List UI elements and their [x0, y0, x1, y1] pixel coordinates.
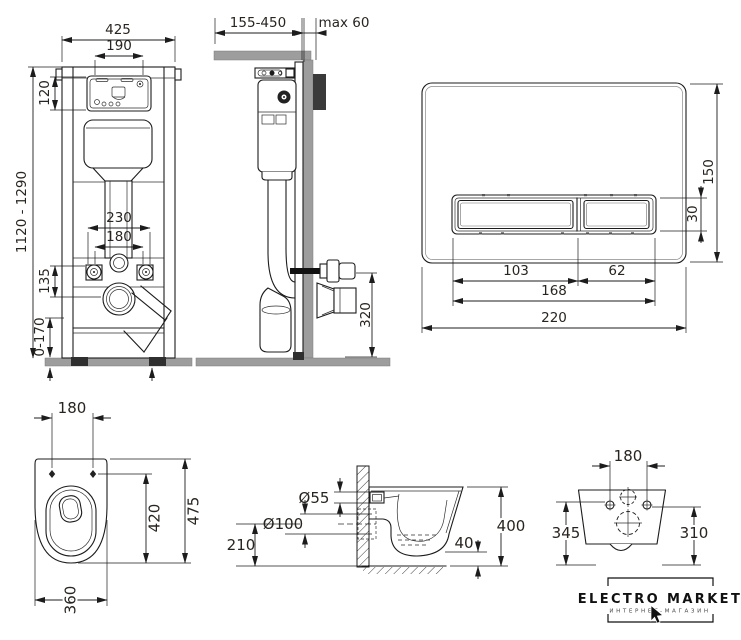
dim-seat-bolt-span: 180	[58, 399, 87, 417]
dim-frame-width: 425	[105, 22, 131, 38]
inlet-socket	[370, 492, 384, 503]
toilet-side-view: Ø55 Ø100 210 400 40	[227, 466, 526, 579]
dim-depth-adjust: 155-450	[230, 15, 286, 31]
technical-drawing: 425 190 120 1120 - 1290 230 180 135 0-17…	[0, 0, 741, 640]
dim-connect-height: 320	[358, 302, 374, 328]
dim-outlet-height: 210	[227, 536, 256, 554]
big-flush-button	[458, 201, 573, 229]
dim-outlet-drop: 135	[37, 268, 53, 294]
floor-strip	[45, 358, 192, 366]
toilet-top-view: 180 475 420 360	[34, 399, 203, 614]
frame-side-view: 155-450 max 60 320	[196, 15, 390, 366]
wall-bracket-pad	[313, 74, 326, 110]
waste-outlet-cone	[317, 283, 356, 318]
dim-fixing-span: 230	[106, 210, 132, 226]
dim-plate-height: 150	[701, 159, 717, 185]
dim-buttons-width: 168	[541, 283, 567, 299]
dim-pan-width: 360	[62, 586, 80, 615]
cistern-side	[258, 80, 296, 180]
flush-plate	[422, 83, 686, 263]
wall-strip	[303, 60, 313, 358]
dim-foot-adjust: 0-170	[32, 317, 48, 356]
trap-bump	[610, 544, 632, 551]
dim-access-height: 120	[37, 80, 53, 106]
dim-bolt-span: 180	[106, 229, 132, 245]
dim-access-width: 190	[106, 38, 132, 54]
flush-plate-view: 150 30 103 62 168 220	[422, 83, 723, 333]
pan-rear-outline	[579, 490, 666, 544]
dim-inlet-dia: Ø55	[299, 489, 330, 507]
small-flush-button	[584, 201, 649, 229]
dim-frame-height: 1120 - 1290	[14, 171, 30, 253]
frame-foot-left	[71, 357, 88, 366]
top-bracket	[255, 68, 295, 78]
toilet-rear-view: 180 345 310	[552, 447, 709, 565]
dim-big-button-width: 103	[503, 263, 529, 279]
brand-name: ELECTRO MARKET	[578, 592, 741, 607]
dim-rear-bolt-span: 180	[614, 447, 643, 465]
frame-front-view: 425 190 120 1120 - 1290 230 180 135 0-17…	[14, 22, 192, 381]
dim-plate-width: 220	[541, 310, 567, 326]
logo-bracket-top	[608, 578, 713, 586]
flush-bend-pipe	[260, 180, 295, 352]
ceiling-strip	[214, 51, 311, 60]
dim-height-left: 345	[552, 524, 581, 542]
dim-gap: 40	[454, 534, 473, 552]
dim-pan-depth-total: 475	[185, 497, 203, 526]
brand-logo: ELECTRO MARKET ИНТЕРНЕТ-МАГАЗИН	[578, 578, 741, 623]
installation-drawing-sheet: 425 190 120 1120 - 1290 230 180 135 0-17…	[0, 0, 741, 640]
dim-height-right: 310	[680, 524, 709, 542]
frame-foot-right	[149, 357, 166, 366]
dim-small-button-width: 62	[608, 263, 625, 279]
cistern-access-window	[87, 76, 151, 111]
dim-button-height: 30	[685, 205, 701, 222]
dim-wall-max: max 60	[319, 15, 370, 31]
dim-pan-depth-inner: 420	[146, 504, 164, 533]
dim-pan-height: 400	[497, 517, 526, 535]
wall-section	[357, 466, 369, 567]
